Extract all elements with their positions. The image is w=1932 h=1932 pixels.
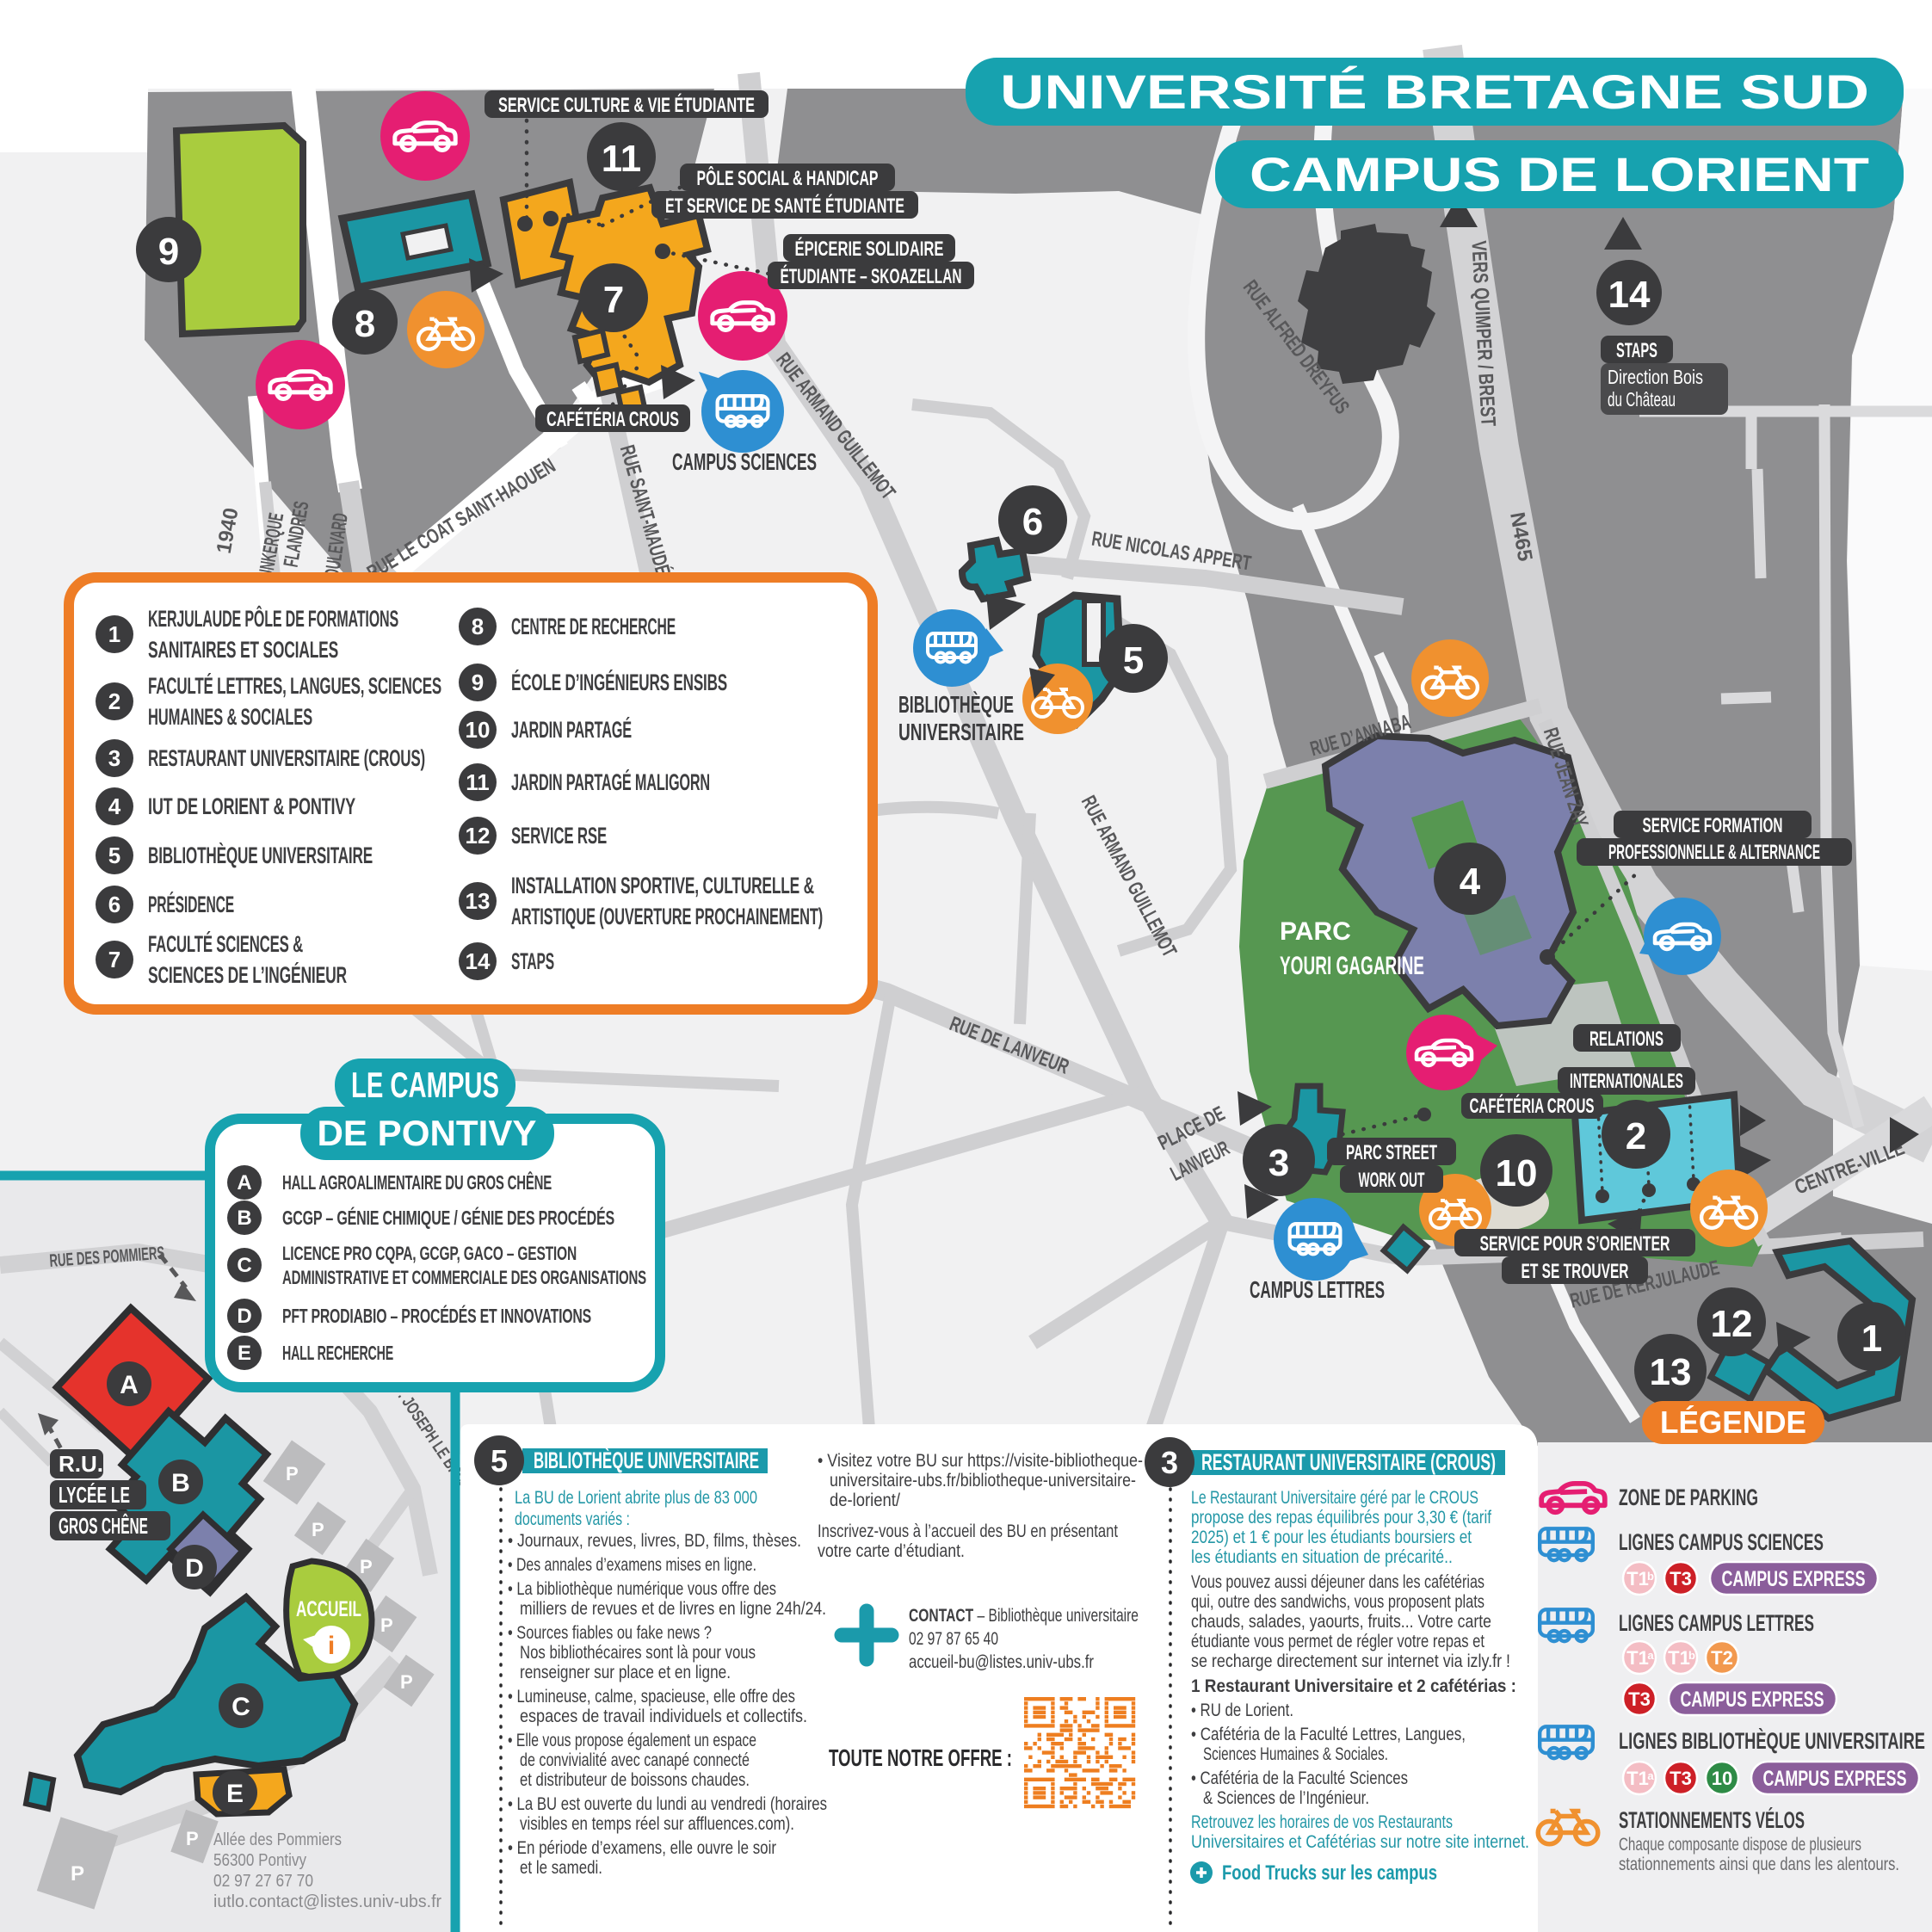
svg-text:SERVICE RSE: SERVICE RSE — [511, 823, 607, 849]
svg-text:ÉTUDIANTE – SKOAZELLAN: ÉTUDIANTE – SKOAZELLAN — [781, 264, 962, 288]
svg-text:ADMINISTRATIVE ET COMMERCIALE: ADMINISTRATIVE ET COMMERCIALE DES ORGANI… — [282, 1267, 646, 1288]
svg-text:5: 5 — [1123, 639, 1144, 682]
svg-text:• Elle vous propose également: • Elle vous propose également un espace — [508, 1730, 756, 1750]
svg-text:D: D — [237, 1305, 251, 1328]
svg-text:T3: T3 — [1670, 1768, 1692, 1789]
svg-text:3: 3 — [1161, 1445, 1178, 1480]
svg-text:CAFÉTÉRIA CROUS: CAFÉTÉRIA CROUS — [1470, 1094, 1595, 1118]
svg-text:de-lorient/: de-lorient/ — [830, 1490, 900, 1510]
svg-text:2: 2 — [108, 688, 120, 714]
svg-text:• RU de Lorient.: • RU de Lorient. — [1191, 1700, 1293, 1720]
svg-text:SCIENCES DE L’INGÉNIEUR: SCIENCES DE L’INGÉNIEUR — [148, 961, 347, 988]
svg-text:YOURI GAGARINE: YOURI GAGARINE — [1280, 952, 1424, 980]
svg-text:• La BU est ouverte du lundi a: • La BU est ouverte du lundi au vendredi… — [508, 1793, 827, 1814]
svg-text:14: 14 — [1608, 274, 1651, 316]
svg-text:STATIONNEMENTS VÉLOS: STATIONNEMENTS VÉLOS — [1619, 1806, 1805, 1833]
svg-text:3: 3 — [108, 745, 120, 771]
svg-text:Universitaires et Cafétérias s: Universitaires et Cafétérias sur notre s… — [1191, 1831, 1529, 1852]
svg-text:universitaire-ubs.fr/bibliothe: universitaire-ubs.fr/bibliotheque-univer… — [830, 1470, 1136, 1491]
svg-text:LÉGENDE: LÉGENDE — [1660, 1404, 1806, 1440]
svg-text:PÔLE SOCIAL & HANDICAP: PÔLE SOCIAL & HANDICAP — [697, 166, 879, 190]
svg-text:STAPS: STAPS — [511, 948, 554, 974]
svg-text:C: C — [231, 1693, 250, 1721]
svg-text:accueil-bu@listes.univ-ubs.fr: accueil-bu@listes.univ-ubs.fr — [909, 1651, 1094, 1672]
svg-text:a: a — [1647, 1769, 1654, 1782]
svg-text:se recharge directement sur in: se recharge directement sur internet via… — [1191, 1651, 1510, 1671]
svg-text:Direction Bois: Direction Bois — [1608, 366, 1703, 388]
svg-text:qui, outre des sandwichs, vous: qui, outre des sandwichs, vous proposent… — [1191, 1591, 1484, 1612]
svg-text:• Visitez votre BU sur https:/: • Visitez votre BU sur https://visite-bi… — [818, 1450, 1143, 1471]
svg-text:10: 10 — [1712, 1768, 1732, 1789]
svg-text:KERJULAUDE PÔLE DE FORMATIONS: KERJULAUDE PÔLE DE FORMATIONS — [148, 605, 398, 632]
svg-text:T1: T1 — [1626, 1647, 1649, 1669]
svg-text:P: P — [71, 1862, 84, 1886]
svg-text:INTERNATIONALES: INTERNATIONALES — [1570, 1070, 1683, 1093]
svg-text:• Journaux, revues, livres, BD: • Journaux, revues, livres, BD, films, t… — [508, 1530, 801, 1551]
svg-text:JARDIN PARTAGÉ MALIGORN: JARDIN PARTAGÉ MALIGORN — [511, 768, 710, 795]
svg-text:documents variés :: documents variés : — [515, 1509, 630, 1529]
svg-text:b: b — [1647, 1570, 1654, 1583]
svg-text:11: 11 — [466, 769, 490, 795]
svg-text:les étudiants en situation de: les étudiants en situation de précarité.… — [1191, 1546, 1453, 1567]
svg-text:HALL AGROALIMENTAIRE DU GROS C: HALL AGROALIMENTAIRE DU GROS CHÊNE — [282, 1170, 552, 1194]
svg-text:• Lumineuse, calme, spacieuse,: • Lumineuse, calme, spacieuse, elle offr… — [508, 1686, 795, 1707]
svg-text:PRÉSIDENCE: PRÉSIDENCE — [148, 891, 234, 917]
svg-text:CAMPUS LETTRES: CAMPUS LETTRES — [1250, 1276, 1385, 1303]
svg-text:P: P — [286, 1463, 299, 1484]
svg-text:10: 10 — [1496, 1152, 1538, 1194]
svg-text:BIBLIOTHÈQUE UNIVERSITAIRE: BIBLIOTHÈQUE UNIVERSITAIRE — [534, 1447, 759, 1473]
svg-text:HUMAINES & SOCIALES: HUMAINES & SOCIALES — [148, 704, 312, 730]
svg-text:ÉPICERIE SOLIDAIRE: ÉPICERIE SOLIDAIRE — [795, 237, 944, 261]
svg-text:E: E — [226, 1780, 244, 1808]
svg-text:1: 1 — [108, 621, 120, 647]
svg-text:GCGP – GÉNIE CHIMIQUE / GÉNIE: GCGP – GÉNIE CHIMIQUE / GÉNIE DES PROCÉD… — [282, 1206, 614, 1229]
svg-text:2025) et 1 € pour les étudiant: 2025) et 1 € pour les étudiants boursier… — [1191, 1527, 1472, 1547]
svg-text:ET SE TROUVER: ET SE TROUVER — [1522, 1260, 1629, 1283]
svg-text:3: 3 — [1268, 1142, 1289, 1184]
svg-text:D: D — [185, 1554, 204, 1583]
svg-text:9: 9 — [158, 231, 179, 273]
svg-text:renseigner sur place et en lig: renseigner sur place et en ligne. — [520, 1662, 731, 1682]
svg-text:• Sources fiables ou fake news: • Sources fiables ou fake news ? — [508, 1622, 712, 1643]
svg-text:P: P — [360, 1556, 373, 1577]
svg-text:CAMPUS SCIENCES: CAMPUS SCIENCES — [672, 448, 817, 475]
svg-text:A: A — [237, 1171, 251, 1194]
svg-text:P: P — [400, 1671, 413, 1693]
svg-text:• Cafétéria de la Faculté Scie: • Cafétéria de la Faculté Sciences — [1191, 1768, 1408, 1788]
svg-text:Food Trucks sur les campus: Food Trucks sur les campus — [1222, 1861, 1437, 1885]
svg-text:02 97 27 67 70: 02 97 27 67 70 — [213, 1872, 313, 1891]
svg-text:Sciences Humaines & Sociales.: Sciences Humaines & Sociales. — [1203, 1744, 1388, 1764]
svg-text:TOUTE NOTRE OFFRE :: TOUTE NOTRE OFFRE : — [829, 1744, 1012, 1771]
svg-text:JARDIN PARTAGÉ: JARDIN PARTAGÉ — [511, 716, 632, 743]
svg-text:ZONE DE PARKING: ZONE DE PARKING — [1619, 1484, 1758, 1510]
svg-text:8: 8 — [355, 303, 375, 345]
svg-text:7: 7 — [603, 279, 624, 321]
svg-text:2: 2 — [1626, 1115, 1646, 1157]
svg-text:6: 6 — [108, 892, 120, 917]
svg-text:10: 10 — [466, 717, 491, 743]
svg-text:IUT DE LORIENT & PONTIVY: IUT DE LORIENT & PONTIVY — [148, 793, 355, 819]
svg-text:LIGNES CAMPUS SCIENCES: LIGNES CAMPUS SCIENCES — [1619, 1529, 1824, 1555]
svg-text:CAMPUS EXPRESS: CAMPUS EXPRESS — [1763, 1767, 1907, 1791]
svg-text:T2: T2 — [1711, 1647, 1733, 1669]
svg-text:T1: T1 — [1668, 1647, 1690, 1669]
svg-text:T3: T3 — [1670, 1568, 1692, 1589]
svg-text:B: B — [237, 1207, 251, 1230]
svg-text:de convivialité avec canapé co: de convivialité avec canapé connecté — [520, 1750, 750, 1770]
svg-text:B: B — [171, 1469, 190, 1497]
svg-text:PROFESSIONNELLE & ALTERNANCE: PROFESSIONNELLE & ALTERNANCE — [1608, 841, 1820, 864]
svg-text:13: 13 — [466, 888, 491, 914]
svg-text:LIGNES CAMPUS LETTRES: LIGNES CAMPUS LETTRES — [1619, 1610, 1814, 1636]
svg-text:stationnements ainsi que dans: stationnements ainsi que dans les alento… — [1619, 1854, 1899, 1874]
svg-text:& Sciences de l’Ingénieur.: & Sciences de l’Ingénieur. — [1203, 1787, 1369, 1808]
svg-text:Nos bibliothécaires sont là po: Nos bibliothécaires sont là pour vous — [520, 1642, 756, 1663]
svg-text:02 97 87 65 40: 02 97 87 65 40 — [909, 1628, 998, 1649]
svg-text:PARC: PARC — [1280, 917, 1351, 946]
svg-text:4: 4 — [1460, 861, 1481, 903]
svg-text:E: E — [238, 1342, 251, 1365]
svg-text:PFT PRODIABIO – PROCÉDÉS ET IN: PFT PRODIABIO – PROCÉDÉS ET INNOVATIONS — [282, 1304, 591, 1327]
svg-text:SERVICE CULTURE & VIE ÉTUDIANT: SERVICE CULTURE & VIE ÉTUDIANTE — [498, 93, 755, 117]
svg-text:7: 7 — [108, 947, 120, 972]
svg-text:Allée des Pommiers: Allée des Pommiers — [213, 1830, 342, 1849]
svg-text:6: 6 — [1022, 501, 1043, 543]
svg-text:HALL RECHERCHE: HALL RECHERCHE — [282, 1342, 393, 1364]
svg-text:• La bibliothèque numérique vo: • La bibliothèque numérique vous offre d… — [508, 1578, 776, 1599]
svg-text:T1: T1 — [1626, 1568, 1649, 1589]
svg-text:BIBLIOTHÈQUE UNIVERSITAIRE: BIBLIOTHÈQUE UNIVERSITAIRE — [148, 842, 373, 868]
svg-text:12: 12 — [1711, 1303, 1753, 1345]
svg-text:DE PONTIVY: DE PONTIVY — [318, 1113, 537, 1153]
svg-text:propose des repas équilibrés p: propose des repas équilibrés pour 3,30 €… — [1191, 1507, 1491, 1528]
svg-text:ACCUEIL: ACCUEIL — [296, 1597, 361, 1621]
svg-text:9: 9 — [472, 670, 484, 695]
svg-text:SERVICE FORMATION: SERVICE FORMATION — [1643, 814, 1783, 837]
svg-text:et distributeur de boissons ch: et distributeur de boissons chaudes. — [520, 1769, 750, 1790]
svg-text:Inscrivez-vous à l’accueil des: Inscrivez-vous à l’accueil des BU en pré… — [818, 1521, 1118, 1541]
svg-text:FACULTÉ SCIENCES &: FACULTÉ SCIENCES & — [148, 930, 303, 957]
svg-text:RESTAURANT UNIVERSITAIRE (CROU: RESTAURANT UNIVERSITAIRE (CROUS) — [1201, 1449, 1496, 1475]
svg-text:ARTISTIQUE (OUVERTURE PROCHAIN: ARTISTIQUE (OUVERTURE PROCHAINEMENT) — [511, 904, 823, 929]
svg-text:LE CAMPUS: LE CAMPUS — [351, 1065, 499, 1105]
svg-text:LIGNES BIBLIOTHÈQUE UNIVERSITA: LIGNES BIBLIOTHÈQUE UNIVERSITAIRE — [1619, 1727, 1925, 1754]
svg-text:milliers de revues et de livre: milliers de revues et de livres en ligne… — [520, 1598, 826, 1619]
svg-text:SANITAIRES ET SOCIALES: SANITAIRES ET SOCIALES — [148, 637, 338, 663]
svg-text:CAFÉTÉRIA CROUS: CAFÉTÉRIA CROUS — [546, 407, 679, 431]
svg-text:et le samedi.: et le samedi. — [520, 1857, 602, 1878]
svg-text:SERVICE POUR S’ORIENTER: SERVICE POUR S’ORIENTER — [1480, 1232, 1670, 1256]
svg-text:T3: T3 — [1628, 1688, 1651, 1710]
svg-text:ET SERVICE DE SANTÉ ÉTUDIANTE: ET SERVICE DE SANTÉ ÉTUDIANTE — [665, 194, 904, 218]
svg-text:CAMPUS EXPRESS: CAMPUS EXPRESS — [1681, 1688, 1824, 1712]
svg-text:CENTRE DE RECHERCHE: CENTRE DE RECHERCHE — [511, 614, 676, 639]
svg-text:P: P — [380, 1614, 393, 1636]
svg-text:CAMPUS EXPRESS: CAMPUS EXPRESS — [1722, 1567, 1866, 1591]
svg-text:BIBLIOTHÈQUE: BIBLIOTHÈQUE — [898, 691, 1014, 718]
svg-text:CAMPUS DE LORIENT: CAMPUS DE LORIENT — [1250, 147, 1869, 201]
svg-text:étudiante vous permet de régle: étudiante vous permet de régler votre re… — [1191, 1631, 1484, 1651]
svg-text:UNIVERSITAIRE: UNIVERSITAIRE — [898, 719, 1024, 745]
svg-text:LICENCE PRO CQPA, GCGP, GACO –: LICENCE PRO CQPA, GCGP, GACO – GESTION — [282, 1243, 577, 1264]
svg-text:13: 13 — [1650, 1351, 1692, 1393]
svg-text:i: i — [328, 1632, 335, 1660]
svg-text:11: 11 — [602, 138, 642, 180]
svg-text:INSTALLATION SPORTIVE, CULTURE: INSTALLATION SPORTIVE, CULTURELLE & — [511, 873, 814, 898]
svg-text:du Château: du Château — [1608, 388, 1676, 410]
svg-text:RELATIONS: RELATIONS — [1589, 1028, 1663, 1051]
svg-text:espaces de travail individuels: espaces de travail individuels et collec… — [520, 1706, 807, 1726]
svg-text:A: A — [120, 1371, 139, 1399]
svg-text:chauds, salades, yaourts, frui: chauds, salades, yaourts, fruits... Votr… — [1191, 1611, 1491, 1632]
svg-text:T1: T1 — [1626, 1768, 1649, 1789]
svg-text:8: 8 — [472, 614, 484, 639]
svg-text:P: P — [312, 1519, 324, 1540]
svg-text:visibles en temps réel sur aff: visibles en temps réel sur affluences.co… — [520, 1813, 794, 1834]
svg-text:P: P — [186, 1828, 199, 1849]
svg-text:1: 1 — [1861, 1318, 1882, 1360]
svg-text:b: b — [1688, 1649, 1695, 1662]
svg-text:Chaque composante dispose de p: Chaque composante dispose de plusieurs — [1619, 1834, 1861, 1855]
svg-text:4: 4 — [108, 793, 121, 819]
svg-text:STAPS: STAPS — [1616, 339, 1657, 362]
svg-text:PARC STREET: PARC STREET — [1346, 1141, 1437, 1164]
svg-text:14: 14 — [466, 948, 491, 974]
svg-text:56300 Pontivy: 56300 Pontivy — [213, 1851, 306, 1870]
svg-text:ÉCOLE D’INGÉNIEURS ENSIBS: ÉCOLE D’INGÉNIEURS ENSIBS — [511, 669, 727, 695]
svg-text:LYCÉE LE: LYCÉE LE — [59, 1482, 130, 1508]
svg-text:RESTAURANT UNIVERSITAIRE (CROU: RESTAURANT UNIVERSITAIRE (CROUS) — [148, 745, 425, 771]
svg-text:• Cafétéria de la Faculté Lett: • Cafétéria de la Faculté Lettres, Langu… — [1191, 1724, 1466, 1744]
svg-text:votre carte d’étudiant.: votre carte d’étudiant. — [818, 1540, 965, 1561]
svg-text:C: C — [237, 1254, 251, 1277]
svg-text:1 Restaurant Universitaire et: 1 Restaurant Universitaire et 2 cafétéri… — [1191, 1676, 1516, 1696]
svg-text:12: 12 — [466, 823, 491, 849]
svg-text:GROS CHÊNE: GROS CHÊNE — [59, 1513, 148, 1539]
svg-text:5: 5 — [491, 1443, 508, 1478]
svg-text:• Des annales d’examens mises: • Des annales d’examens mises en ligne. — [508, 1554, 756, 1575]
svg-text:• En période d’examens, elle o: • En période d’examens, elle ouvre le so… — [508, 1837, 776, 1858]
svg-text:Retrouvez les horaires de vos: Retrouvez les horaires de vos Restaurant… — [1191, 1812, 1453, 1832]
svg-text:FACULTÉ LETTRES, LANGUES, SCIE: FACULTÉ LETTRES, LANGUES, SCIENCES — [148, 672, 441, 699]
svg-text:Vous pouvez aussi déjeuner dan: Vous pouvez aussi déjeuner dans les café… — [1191, 1571, 1484, 1592]
svg-text:Le Restaurant Universitaire gé: Le Restaurant Universitaire géré par le … — [1191, 1487, 1478, 1508]
svg-text:a: a — [1647, 1649, 1654, 1662]
svg-text:CONTACT – Bibliothèque univers: CONTACT – Bibliothèque universitaire — [909, 1605, 1139, 1626]
svg-text:La BU de Lorient abrite plus d: La BU de Lorient abrite plus de 83 000 — [515, 1487, 757, 1508]
svg-text:WORK OUT: WORK OUT — [1359, 1169, 1425, 1192]
svg-text:UNIVERSITÉ BRETAGNE SUD: UNIVERSITÉ BRETAGNE SUD — [1000, 65, 1869, 119]
svg-text:5: 5 — [108, 843, 120, 868]
svg-text:iutlo.contact@listes.univ-ubs.: iutlo.contact@listes.univ-ubs.fr — [213, 1892, 441, 1911]
svg-text:R.U.: R.U. — [59, 1451, 103, 1477]
